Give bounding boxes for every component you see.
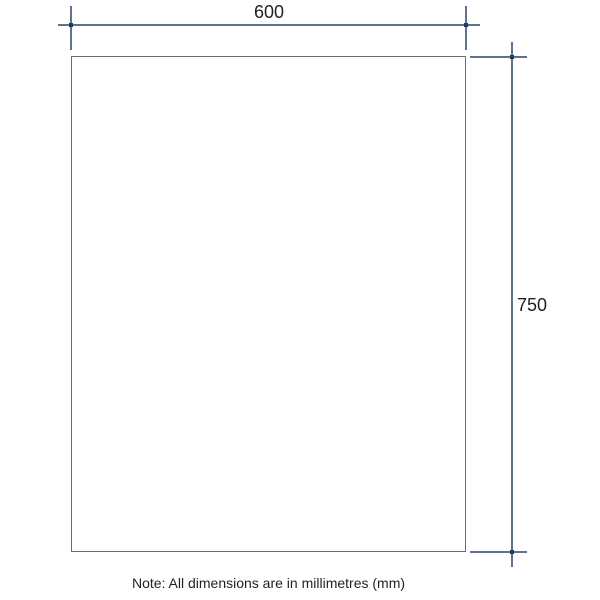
- width-dimension-label: 600: [58, 3, 480, 21]
- height-extension-line-top: [470, 56, 527, 57]
- width-dimension-marker-right: [464, 23, 469, 28]
- height-dimension-line: [511, 42, 512, 567]
- height-dimension-marker-top: [510, 55, 515, 60]
- height-dimension-label: 750: [517, 296, 547, 314]
- height-dimension-marker-bottom: [510, 550, 515, 555]
- width-dimension-marker-left: [69, 23, 74, 28]
- panel-outline: [71, 56, 466, 552]
- units-note: Note: All dimensions are in millimetres …: [71, 575, 466, 592]
- width-dimension-line: [58, 24, 480, 25]
- height-extension-line-bottom: [470, 551, 527, 552]
- drawing-canvas: 600 750 Note: All dimensions are in mill…: [0, 0, 600, 600]
